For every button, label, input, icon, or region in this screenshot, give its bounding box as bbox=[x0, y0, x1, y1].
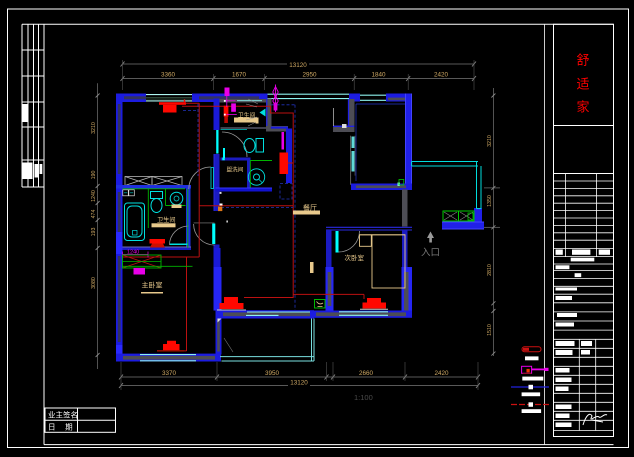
svg-text:家: 家 bbox=[576, 100, 589, 115]
svg-text:3370: 3370 bbox=[162, 370, 177, 377]
svg-text:13120: 13120 bbox=[289, 62, 307, 69]
svg-text:盥洗间: 盥洗间 bbox=[227, 166, 244, 174]
svg-text:业主签名: 业主签名 bbox=[48, 410, 78, 420]
svg-text:1510: 1510 bbox=[487, 324, 493, 336]
svg-text:474: 474 bbox=[91, 210, 97, 219]
svg-text:2420: 2420 bbox=[434, 370, 449, 377]
svg-text:2660: 2660 bbox=[359, 370, 374, 377]
svg-text:190: 190 bbox=[91, 171, 97, 180]
svg-text:1:100: 1:100 bbox=[354, 393, 373, 402]
svg-text:1840: 1840 bbox=[371, 72, 386, 79]
svg-text:2950: 2950 bbox=[302, 72, 317, 79]
svg-text:入口: 入口 bbox=[421, 248, 440, 259]
svg-text:日 期: 日 期 bbox=[48, 423, 73, 432]
svg-text:舒: 舒 bbox=[576, 53, 589, 68]
svg-text:1240: 1240 bbox=[91, 190, 97, 202]
svg-text:193: 193 bbox=[91, 228, 97, 237]
svg-text:2810: 2810 bbox=[487, 264, 493, 276]
svg-text:2420: 2420 bbox=[434, 72, 449, 79]
svg-text:次卧室: 次卧室 bbox=[345, 253, 365, 262]
svg-text:3360: 3360 bbox=[161, 72, 176, 79]
svg-text:卫生间: 卫生间 bbox=[157, 216, 176, 224]
svg-text:13120: 13120 bbox=[290, 380, 308, 387]
svg-text:3950: 3950 bbox=[265, 370, 280, 377]
svg-text:1350: 1350 bbox=[487, 195, 493, 207]
svg-text:3080: 3080 bbox=[91, 277, 97, 289]
svg-text:1670: 1670 bbox=[232, 72, 247, 79]
svg-text:3210: 3210 bbox=[487, 135, 493, 147]
svg-text:适: 适 bbox=[576, 77, 589, 92]
svg-text:主卧室: 主卧室 bbox=[142, 281, 163, 290]
svg-text:卫生间: 卫生间 bbox=[238, 111, 256, 119]
svg-text:3210: 3210 bbox=[91, 122, 97, 134]
